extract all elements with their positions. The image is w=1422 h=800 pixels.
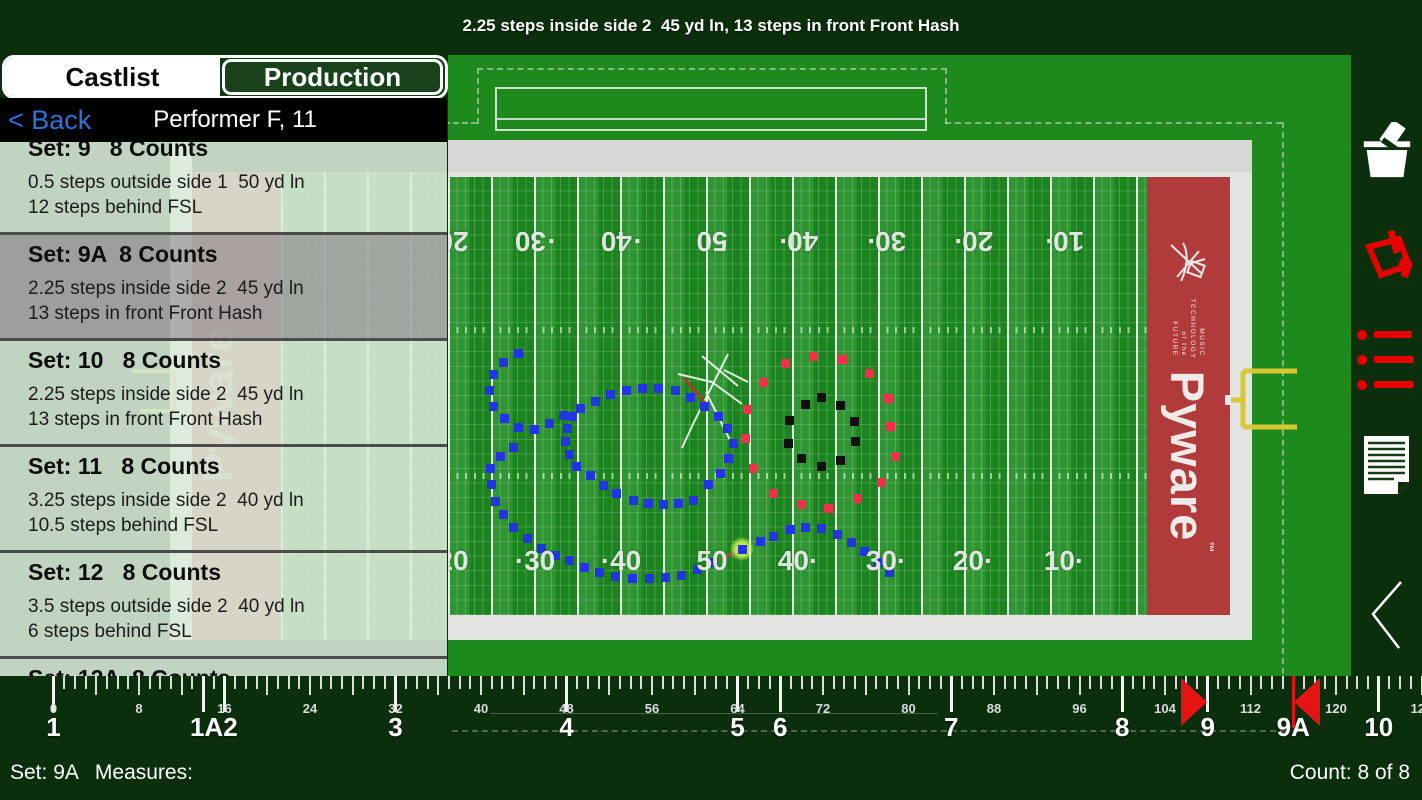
performer-dot[interactable] xyxy=(743,405,752,414)
timeline-count-number: 72 xyxy=(816,701,830,716)
performer-dot[interactable] xyxy=(769,532,778,541)
timeline-tick xyxy=(1132,676,1134,689)
collapse-left-icon[interactable] xyxy=(1369,580,1405,650)
timeline-tick xyxy=(993,676,995,695)
timeline-tick xyxy=(972,676,974,689)
timeline-tick xyxy=(704,676,706,689)
timeline-tick xyxy=(298,676,300,689)
timeline-tick xyxy=(961,676,963,689)
yard-number-bottom: ·40 xyxy=(601,545,641,577)
timeline-tick xyxy=(106,676,108,689)
timeline-tick xyxy=(159,676,161,689)
performer-dot[interactable] xyxy=(489,370,498,379)
performer-dot[interactable] xyxy=(496,452,505,461)
timeline-tick xyxy=(213,676,215,689)
set-list: Set: 9 8 Counts0.5 steps outside side 1 … xyxy=(0,142,447,676)
performer-dot[interactable] xyxy=(491,497,500,506)
back-hash-marks xyxy=(448,327,1147,333)
yard-number-top: 30· xyxy=(866,225,906,257)
set-header: Set: 12 8 Counts xyxy=(28,559,437,586)
performer-dot[interactable] xyxy=(784,439,793,448)
performer-dot[interactable] xyxy=(489,402,498,411)
tab-production[interactable]: Production xyxy=(222,59,443,95)
timeline-tick xyxy=(811,676,813,689)
set-position-line: 6 steps behind FSL xyxy=(28,619,437,644)
performer-dot[interactable] xyxy=(563,424,572,433)
selected-performer-dot[interactable] xyxy=(738,545,747,554)
performer-dot[interactable] xyxy=(674,499,683,508)
performer-dot[interactable] xyxy=(530,425,539,434)
yard-number-bottom: 30· xyxy=(866,545,906,577)
performer-dot[interactable] xyxy=(486,464,495,473)
timeline-count-number: 8 xyxy=(135,701,142,716)
performer-dot[interactable] xyxy=(580,563,589,572)
timeline-tick xyxy=(608,676,610,695)
timeline-tick xyxy=(469,676,471,689)
set-position-line: 3.5 steps outside side 2 40 yd ln xyxy=(28,594,437,619)
timeline-set-label[interactable]: 4 xyxy=(559,712,573,743)
performer-dot[interactable] xyxy=(838,355,847,364)
timeline-set-label[interactable]: 3 xyxy=(388,712,402,743)
performer-dot[interactable] xyxy=(836,456,845,465)
set-list-item[interactable]: Set: 9 8 Counts0.5 steps outside side 1 … xyxy=(0,142,447,232)
timeline-count-number: 112 xyxy=(1240,701,1261,716)
panel-tab-bar: Castlist Production xyxy=(2,55,448,99)
performer-dot[interactable] xyxy=(759,378,768,387)
set-list-item[interactable]: Set: 9A 8 Counts2.25 steps inside side 2… xyxy=(0,232,447,338)
timeline-tick xyxy=(1100,676,1102,689)
performer-dot[interactable] xyxy=(729,439,738,448)
performer-dot[interactable] xyxy=(661,573,670,582)
timeline-tick xyxy=(512,676,514,689)
yard-number-bottom: 20· xyxy=(953,545,993,577)
timeline-tick xyxy=(277,676,279,689)
timeline-tick xyxy=(651,676,653,695)
performer-dot[interactable] xyxy=(568,412,577,421)
boundary-dash-showthrough xyxy=(452,730,1286,732)
performer-dot[interactable] xyxy=(797,454,806,463)
castlist-panel: Pyware Set: 9 8 Counts0.5 steps outside … xyxy=(0,55,447,676)
performer-dot[interactable] xyxy=(836,401,845,410)
timeline-tick xyxy=(1164,676,1166,695)
timeline-tick xyxy=(95,676,97,695)
timeline-tick xyxy=(1111,676,1113,689)
timeline-tick xyxy=(683,676,685,689)
timeline-set-label[interactable]: 1 xyxy=(46,712,60,743)
timeline-set-label[interactable]: 6 xyxy=(773,712,787,743)
field-edge-showthrough xyxy=(490,713,938,714)
performer-dot[interactable] xyxy=(523,534,532,543)
set-position-line: 0.5 steps outside side 1 50 yd ln xyxy=(28,170,437,195)
timeline-tick xyxy=(544,676,546,689)
timeline-tick xyxy=(416,676,418,689)
timeline-tick xyxy=(747,676,749,689)
goal-post-right xyxy=(1225,363,1300,433)
count-readout: Count: 8 of 8 xyxy=(1290,761,1410,785)
timeline-tick xyxy=(352,676,354,695)
performer-dot[interactable] xyxy=(817,524,826,533)
timeline-tick xyxy=(897,676,899,689)
performer-dot[interactable] xyxy=(671,386,680,395)
timeline-set-label[interactable]: 8 xyxy=(1115,712,1129,743)
timeline-tick xyxy=(384,676,386,689)
red-list-icon[interactable] xyxy=(1357,329,1417,393)
timeline-tick xyxy=(191,676,193,689)
performer-dot[interactable] xyxy=(809,352,818,361)
tool-sidebar xyxy=(1351,55,1422,745)
front-hash-marks xyxy=(448,473,1147,479)
timeline-tick xyxy=(982,676,984,689)
performer-dot[interactable] xyxy=(509,443,518,452)
timeline-count-number: 120 xyxy=(1325,701,1347,716)
timeline-tick xyxy=(170,676,172,689)
performer-dot[interactable] xyxy=(877,478,886,487)
performer-dot[interactable] xyxy=(586,471,595,480)
timeline-tick xyxy=(1089,676,1091,689)
field-canvas[interactable]: MUSIC TECHNOLOGY of the FUTURE Pyware™ 2… xyxy=(448,55,1351,676)
performer-dot[interactable] xyxy=(741,434,750,443)
timeline-count-number: 104 xyxy=(1154,701,1176,716)
timeline-tick xyxy=(1079,676,1081,695)
performer-dot[interactable] xyxy=(786,525,795,534)
timeline-tick xyxy=(480,676,482,695)
yard-number-bottom: ·30 xyxy=(515,545,555,577)
set-header: Set: 9 8 Counts xyxy=(28,142,437,162)
timeline-tick xyxy=(1036,676,1038,695)
performer-dot[interactable] xyxy=(723,424,732,433)
timeline-tick xyxy=(149,676,151,689)
performer-dot[interactable] xyxy=(847,538,856,547)
performer-dot[interactable] xyxy=(824,504,833,513)
performer-dot[interactable] xyxy=(499,358,508,367)
timeline-tick xyxy=(74,676,76,689)
set-position-line: 2.25 steps inside side 2 45 yd ln xyxy=(28,276,437,301)
timeline-tick xyxy=(1228,676,1230,689)
range-start-marker[interactable] xyxy=(1181,678,1207,726)
performer-dot[interactable] xyxy=(622,386,631,395)
yard-number-top: 40· xyxy=(778,225,818,257)
timeline-tick xyxy=(341,676,343,689)
playhead-marker[interactable] xyxy=(1292,676,1295,728)
timeline-tick xyxy=(555,676,557,689)
performer-dot[interactable] xyxy=(797,500,806,509)
performer-dot[interactable] xyxy=(833,530,842,539)
yard-number-top: 50 xyxy=(696,225,727,257)
performer-dot[interactable] xyxy=(700,402,709,411)
performer-dot[interactable] xyxy=(781,359,790,368)
set-measures-readout: Set: 9A Measures: xyxy=(10,761,193,785)
page-boundary-dash-top-left xyxy=(448,122,477,124)
yard-number-top: 20· xyxy=(953,225,993,257)
timeline-tick xyxy=(630,676,632,689)
performer-dot[interactable] xyxy=(769,489,778,498)
timeline-tick xyxy=(309,676,311,695)
performer-dot[interactable] xyxy=(591,397,600,406)
timeline-tick xyxy=(769,676,771,689)
set-list-item[interactable]: Set: 12A 8 Counts xyxy=(0,656,447,676)
timeline-tick xyxy=(320,676,322,689)
timeline-tick xyxy=(822,676,824,695)
document-icon[interactable] xyxy=(1362,434,1412,496)
set-header: Set: 11 8 Counts xyxy=(28,453,437,480)
timeline-tick xyxy=(1324,676,1326,689)
timeline-tick xyxy=(726,676,728,689)
timeline-tick xyxy=(1057,676,1059,689)
performer-dot[interactable] xyxy=(716,469,725,478)
timeline-tick xyxy=(1388,676,1390,689)
timeline-tick xyxy=(1143,676,1145,689)
timeline-count-number: 56 xyxy=(645,701,659,716)
timeline-tick xyxy=(940,676,942,689)
timeline-tick xyxy=(854,676,856,689)
timeline-tick xyxy=(202,676,205,712)
yard-number-top: 20 xyxy=(448,225,469,257)
performer-dot[interactable] xyxy=(853,494,862,503)
timeline-tick xyxy=(886,676,888,689)
timeline-tick xyxy=(1377,676,1380,712)
performer-dot[interactable] xyxy=(514,349,523,358)
yard-number-bottom: 20 xyxy=(448,545,469,577)
performer-dot[interactable] xyxy=(851,437,860,446)
timeline-tick xyxy=(85,676,87,689)
performer-dot[interactable] xyxy=(677,571,686,580)
performer-dot[interactable] xyxy=(599,481,608,490)
timeline-tick xyxy=(662,676,664,689)
timeline-tick xyxy=(1217,676,1219,689)
timeline-tick xyxy=(448,676,450,689)
performer-dot[interactable] xyxy=(801,400,810,409)
yard-number-bottom: 50 xyxy=(696,545,727,577)
performer-dot[interactable] xyxy=(724,454,733,463)
pyware-tagline: MUSIC TECHNOLOGY of the FUTURE xyxy=(1170,299,1206,357)
pyware-logo-glyph xyxy=(1165,239,1211,285)
pyware-brand-text: Pyware™ xyxy=(1161,371,1216,554)
timeline-tick xyxy=(587,676,589,689)
timeline-tick xyxy=(234,676,236,689)
timeline-set-label[interactable]: 1A2 xyxy=(190,712,238,743)
timeline-tick xyxy=(288,676,290,689)
performer-dot[interactable] xyxy=(561,437,570,446)
timeline-tick xyxy=(256,676,258,689)
yard-number-top: ·40 xyxy=(601,225,641,257)
performer-name: Performer F, 11 xyxy=(153,106,317,134)
timeline-tick xyxy=(427,676,429,689)
timeline-tick xyxy=(1121,676,1124,712)
set-position-line: 2.25 steps inside side 2 45 yd ln xyxy=(28,382,437,407)
set-header: Set: 12A 8 Counts xyxy=(28,665,437,676)
timeline-tick xyxy=(576,676,578,689)
pyware-viewer-app: 2.25 steps inside side 2 45 yd ln, 13 st… xyxy=(0,0,1422,800)
back-bar: < Back Performer F, 11 xyxy=(0,98,447,142)
timeline-set-label[interactable]: 10 xyxy=(1364,712,1393,743)
timeline-tick xyxy=(117,676,119,689)
range-end-marker[interactable] xyxy=(1294,678,1320,726)
track-band xyxy=(448,140,1252,172)
performer-dot[interactable] xyxy=(629,496,638,505)
measures-label: Measures: xyxy=(95,761,193,785)
set-position-line: 3.25 steps inside side 2 40 yd ln xyxy=(28,488,437,513)
timeline-tick xyxy=(1356,676,1358,689)
timeline-tick xyxy=(908,676,910,695)
performer-dot[interactable] xyxy=(865,369,874,378)
timeline-tick xyxy=(640,676,642,689)
timeline-tick xyxy=(1250,676,1252,695)
set-header: Set: 9A 8 Counts xyxy=(28,241,437,268)
performer-dot[interactable] xyxy=(689,496,698,505)
performer-dot[interactable] xyxy=(659,500,668,509)
performer-dot[interactable] xyxy=(576,404,585,413)
yard-number-top: 10· xyxy=(1044,225,1084,257)
timeline-tick xyxy=(672,676,674,689)
ballot-box-icon[interactable] xyxy=(1358,122,1416,180)
performer-dot[interactable] xyxy=(886,422,895,431)
yard-number-bottom: 40· xyxy=(778,545,818,577)
timeline-tick xyxy=(1410,676,1412,689)
timeline-tick xyxy=(138,676,140,695)
performer-dot[interactable] xyxy=(644,499,653,508)
set-position-line: 12 steps behind FSL xyxy=(28,195,437,220)
performer-dot[interactable] xyxy=(559,411,568,420)
press-box-divider xyxy=(497,118,925,120)
timeline-tick xyxy=(1175,676,1177,689)
timeline-tick xyxy=(330,676,332,689)
timeline-tick xyxy=(1282,676,1284,689)
performer-dot[interactable] xyxy=(850,417,859,426)
timeline-tick xyxy=(833,676,835,689)
top-header-bar: 2.25 steps inside side 2 45 yd ln, 13 st… xyxy=(0,0,1422,55)
performer-dot[interactable] xyxy=(884,394,893,403)
performer-dot[interactable] xyxy=(704,480,713,489)
timeline-tick xyxy=(1004,676,1006,689)
yard-number-bottom: 10· xyxy=(1044,545,1084,577)
timeline-tick xyxy=(875,676,877,689)
performer-dot[interactable] xyxy=(606,390,615,399)
performer-dot[interactable] xyxy=(500,414,509,423)
timeline-tick xyxy=(598,676,600,689)
timeline-tick xyxy=(1068,676,1070,689)
timeline-tick xyxy=(362,676,364,689)
timeline-tick xyxy=(758,676,760,689)
timeline-tick xyxy=(1271,676,1273,689)
timeline-count-number: 40 xyxy=(474,701,488,716)
timeline-tick xyxy=(181,676,183,695)
timeline-tick xyxy=(929,676,931,689)
timeline-tick xyxy=(63,676,65,689)
timeline-tick xyxy=(266,676,268,695)
page-boundary-dash-top-right xyxy=(945,122,1282,124)
timeline-count-number: 88 xyxy=(987,701,1001,716)
performer-dot[interactable] xyxy=(645,574,654,583)
set-header: Set: 10 8 Counts xyxy=(28,347,437,374)
timeline-tick xyxy=(523,676,525,695)
performer-dot[interactable] xyxy=(638,384,647,393)
performer-dot[interactable] xyxy=(686,393,695,402)
timeline-tick xyxy=(790,676,792,689)
timeline-tick xyxy=(950,676,953,712)
timeline-tick xyxy=(245,676,247,689)
timeline-tick xyxy=(1367,676,1369,689)
timeline-tick xyxy=(459,676,461,689)
timeline-tick xyxy=(779,676,782,712)
timeline-tick xyxy=(1046,676,1048,689)
performer-dot[interactable] xyxy=(499,510,508,519)
timeline-tick xyxy=(501,676,503,689)
pyware-logo: MUSIC TECHNOLOGY of the FUTURE Pyware™ xyxy=(1147,186,1229,606)
timeline-tick xyxy=(127,676,129,689)
performer-dot[interactable] xyxy=(509,523,518,532)
performer-dot[interactable] xyxy=(785,416,794,425)
performer-dot[interactable] xyxy=(485,386,494,395)
timeline-count-number: 80 xyxy=(901,701,915,716)
timeline-tick xyxy=(491,676,493,689)
performer-dot[interactable] xyxy=(565,556,574,565)
set-list-item[interactable]: Set: 11 8 Counts3.25 steps inside side 2… xyxy=(0,444,447,550)
performer-dot[interactable] xyxy=(801,523,810,532)
timeline-tick xyxy=(1153,676,1155,689)
performer-dot[interactable] xyxy=(714,412,723,421)
timeline-tick xyxy=(373,676,375,689)
tab-castlist[interactable]: Castlist xyxy=(5,58,220,96)
performer-dot[interactable] xyxy=(817,393,826,402)
timeline-tick xyxy=(1025,676,1027,689)
performer-dot[interactable] xyxy=(817,462,826,471)
performer-dot[interactable] xyxy=(545,419,554,428)
end-zone: MUSIC TECHNOLOGY of the FUTURE Pyware™ xyxy=(1147,177,1230,615)
timeline-count-number: 128 xyxy=(1411,701,1422,716)
performer-position-readout: 2.25 steps inside side 2 45 yd ln, 13 st… xyxy=(0,16,1422,36)
timeline-tick xyxy=(715,676,717,689)
transport-bar: Set: 9A Measures: xyxy=(0,745,1422,800)
performer-dot[interactable] xyxy=(514,423,523,432)
performer-dot[interactable] xyxy=(487,480,496,489)
current-set-label: Set: 9A xyxy=(10,761,79,785)
set-position-line: 13 steps in front Front Hash xyxy=(28,301,437,326)
timeline-tick xyxy=(437,676,439,695)
timeline-tick xyxy=(694,676,696,695)
performer-dot[interactable] xyxy=(612,489,621,498)
performer-dot[interactable] xyxy=(749,464,758,473)
timeline-tick xyxy=(843,676,845,689)
back-button[interactable]: < Back xyxy=(8,105,91,136)
timeline-tick xyxy=(533,676,535,689)
performer-dot[interactable] xyxy=(565,450,574,459)
press-box-outline xyxy=(495,87,927,131)
performer-dot[interactable] xyxy=(572,462,581,471)
performer-dot[interactable] xyxy=(756,537,765,546)
timeline-tick xyxy=(619,676,621,689)
set-position-line: 10.5 steps behind FSL xyxy=(28,513,437,538)
performer-dot[interactable] xyxy=(891,452,900,461)
timeline-tick xyxy=(801,676,803,689)
red-marker-icon[interactable] xyxy=(1356,225,1418,287)
timeline-tick xyxy=(1014,676,1016,689)
timeline-tick xyxy=(1239,676,1241,689)
timeline-set-label[interactable]: 5 xyxy=(730,712,744,743)
timeline-tick xyxy=(1399,676,1401,689)
timeline-tick xyxy=(865,676,867,695)
timeline-tick xyxy=(1335,676,1337,695)
yard-number-top: ·30 xyxy=(515,225,555,257)
timeline-count-number: 24 xyxy=(303,701,317,716)
set-list-item[interactable]: Set: 12 8 Counts3.5 steps outside side 2… xyxy=(0,550,447,656)
performer-dot[interactable] xyxy=(654,384,663,393)
count-timeline[interactable]: 08162432404856647280889610411212012811A2… xyxy=(0,676,1422,745)
set-list-item[interactable]: Set: 10 8 Counts2.25 steps inside side 2… xyxy=(0,338,447,444)
set-position-line: 13 steps in front Front Hash xyxy=(28,407,437,432)
timeline-tick xyxy=(1260,676,1262,689)
timeline-set-label[interactable]: 7 xyxy=(944,712,958,743)
timeline-count-number: 96 xyxy=(1072,701,1086,716)
